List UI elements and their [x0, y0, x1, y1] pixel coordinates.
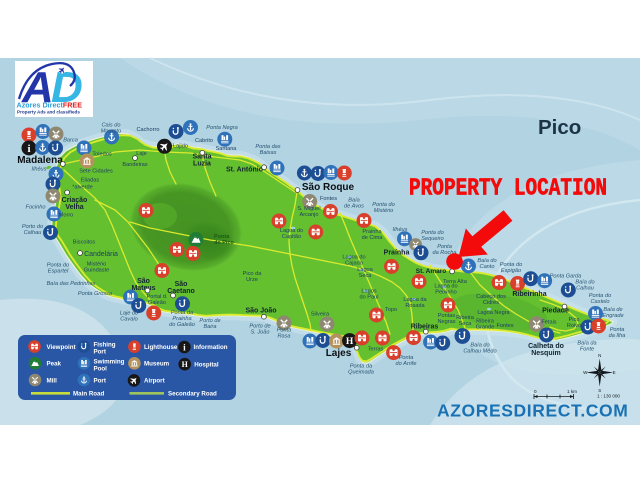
svg-text:St. Amaro: St. Amaro	[416, 268, 446, 275]
svg-text:Nesquim: Nesquim	[531, 350, 561, 357]
svg-text:Peixinho: Peixinho	[435, 290, 456, 296]
svg-text:St. António: St. António	[226, 167, 263, 174]
svg-text:Port: Port	[94, 377, 106, 384]
svg-text:do Paul: do Paul	[360, 295, 379, 301]
svg-text:Rasa: Rasa	[277, 334, 290, 340]
svg-text:Laje: Laje	[136, 151, 147, 157]
svg-text:Cajado: Cajado	[345, 261, 363, 267]
svg-text:Ribeirinha: Ribeirinha	[512, 291, 546, 298]
svg-text:Ilhéus: Ilhéus	[32, 167, 47, 173]
svg-text:Madalena: Madalena	[17, 155, 63, 166]
svg-text:Ponta Grossa: Ponta Grossa	[78, 291, 112, 297]
svg-text:Pool: Pool	[94, 365, 108, 372]
svg-text:São: São	[137, 278, 150, 285]
svg-text:Bandeiras: Bandeiras	[122, 162, 147, 168]
svg-text:PROPERTY LOCATION: PROPERTY LOCATION	[409, 176, 607, 203]
svg-text:Museum: Museum	[144, 361, 170, 368]
svg-text:Ponta Negra: Ponta Negra	[206, 125, 237, 131]
svg-text:Roivo: Roivo	[567, 323, 581, 329]
svg-text:Cabrito: Cabrito	[195, 138, 213, 144]
svg-text:Mill: Mill	[47, 377, 58, 384]
svg-text:Cachorro: Cachorro	[136, 127, 159, 133]
svg-text:Calhau: Calhau	[24, 230, 42, 236]
svg-text:Biscoitos: Biscoitos	[73, 240, 96, 246]
svg-text:Information: Information	[194, 344, 228, 351]
svg-text:do Pico: do Pico	[214, 240, 235, 246]
svg-text:AZORESDIRECT.COM: AZORESDIRECT.COM	[437, 401, 628, 421]
svg-text:Property Ads and classifieds: Property Ads and classifieds	[17, 110, 80, 115]
svg-text:Barca: Barca	[63, 138, 78, 144]
svg-text:Guindaste: Guindaste	[84, 268, 110, 274]
svg-text:Mistério: Mistério	[374, 208, 394, 214]
svg-text:Queimada: Queimada	[348, 370, 374, 376]
svg-text:Topo: Topo	[385, 307, 397, 313]
svg-text:Fetais: Fetais	[541, 320, 556, 326]
svg-text:Lajido: Lajido	[173, 144, 188, 150]
svg-text:Urze: Urze	[246, 277, 258, 283]
svg-text:Port: Port	[94, 349, 106, 356]
svg-text:Grande: Grande	[476, 325, 495, 331]
svg-text:Sete Cidades: Sete Cidades	[79, 168, 113, 174]
svg-text:Viewpoint: Viewpoint	[47, 344, 76, 351]
svg-text:São: São	[175, 281, 188, 288]
svg-text:Castelo: Castelo	[591, 299, 610, 305]
svg-text:Engrade: Engrade	[602, 313, 623, 319]
svg-text:Lagoa Negra: Lagoa Negra	[477, 310, 510, 316]
svg-text:Praínha: Praínha	[384, 250, 410, 257]
svg-text:Fishing: Fishing	[94, 342, 116, 349]
svg-text:da Ilha: da Ilha	[609, 333, 626, 339]
svg-text:Secondary Road: Secondary Road	[168, 391, 217, 398]
svg-text:Eliadas: Eliadas	[81, 178, 100, 184]
svg-text:São João: São João	[245, 308, 276, 315]
svg-text:Fonte: Fonte	[580, 347, 594, 353]
svg-text:Mourato: Mourato	[101, 129, 122, 135]
svg-text:Candelária: Candelária	[84, 251, 118, 258]
svg-text:Mateus: Mateus	[131, 285, 155, 292]
svg-text:Focinho: Focinho	[26, 205, 46, 211]
svg-text:do Arrife: do Arrife	[396, 361, 417, 367]
svg-text:N: N	[598, 353, 601, 358]
svg-text:*alverde: *alverde	[72, 185, 93, 191]
svg-text:Peak: Peak	[47, 361, 62, 368]
svg-text:Main Road: Main Road	[73, 391, 105, 398]
svg-text:Baira: Baira	[203, 324, 216, 330]
svg-text:Pico: Pico	[538, 116, 581, 139]
svg-text:de Avos: de Avos	[344, 204, 364, 210]
svg-text:Airport: Airport	[144, 378, 165, 385]
svg-text:E: E	[613, 370, 616, 375]
svg-text:Rosada: Rosada	[405, 303, 425, 309]
svg-text:de Cima: de Cima	[362, 235, 384, 241]
svg-text:Baixas: Baixas	[260, 150, 277, 156]
svg-text:Toledos: Toledos	[92, 152, 111, 158]
svg-text:Velha: Velha	[65, 204, 83, 211]
svg-text:Seca: Seca	[359, 273, 373, 279]
svg-text:Espartel: Espartel	[48, 269, 69, 275]
svg-text:Swimming: Swimming	[94, 358, 125, 365]
svg-text:Silveira: Silveira	[311, 312, 330, 318]
svg-text:1 : 130 000: 1 : 130 000	[597, 394, 620, 399]
svg-text:Criação: Criação	[62, 197, 88, 204]
svg-text:1 km: 1 km	[567, 389, 577, 394]
svg-text:Calhau: Calhau	[576, 286, 594, 292]
svg-text:Capitão: Capitão	[282, 234, 301, 240]
svg-text:Cidres: Cidres	[483, 300, 499, 306]
svg-text:Lajes: Lajes	[326, 348, 352, 359]
svg-text:Negras: Negras	[437, 319, 455, 325]
svg-text:Seca: Seca	[459, 321, 473, 327]
svg-text:Arcanjo: Arcanjo	[300, 212, 319, 218]
svg-text:S. João: S. João	[251, 330, 270, 336]
svg-text:Cavalo: Cavalo	[120, 317, 137, 323]
svg-text:Hospital: Hospital	[194, 361, 219, 368]
svg-text:0: 0	[534, 389, 537, 394]
svg-text:Calhau Mêdo: Calhau Mêdo	[463, 349, 496, 355]
svg-text:Luzia: Luzia	[193, 161, 211, 168]
svg-text:Lighthouse: Lighthouse	[144, 344, 178, 351]
svg-text:Baía das Pedrinhas: Baía das Pedrinhas	[47, 281, 96, 287]
svg-text:do Galeão: do Galeão	[169, 322, 195, 328]
svg-text:São Roque: São Roque	[302, 182, 355, 193]
svg-text:Terras: Terras	[368, 347, 384, 353]
svg-text:Ilhéus: Ilhéus	[393, 227, 408, 233]
svg-text:Canto: Canto	[480, 264, 495, 270]
svg-text:Fontes: Fontes	[320, 196, 337, 202]
svg-text:Fontes: Fontes	[496, 323, 513, 329]
svg-text:Sequeiro: Sequeiro	[421, 236, 443, 242]
svg-text:Calheta do: Calheta do	[528, 343, 564, 350]
svg-text:Azores DirectFREE: Azores DirectFREE	[17, 101, 83, 110]
svg-text:Morro: Morro	[59, 213, 74, 219]
svg-text:Galeão: Galeão	[148, 300, 166, 306]
svg-text:Santana: Santana	[216, 146, 238, 152]
svg-text:Espigão: Espigão	[501, 268, 521, 274]
svg-text:S: S	[598, 388, 601, 393]
